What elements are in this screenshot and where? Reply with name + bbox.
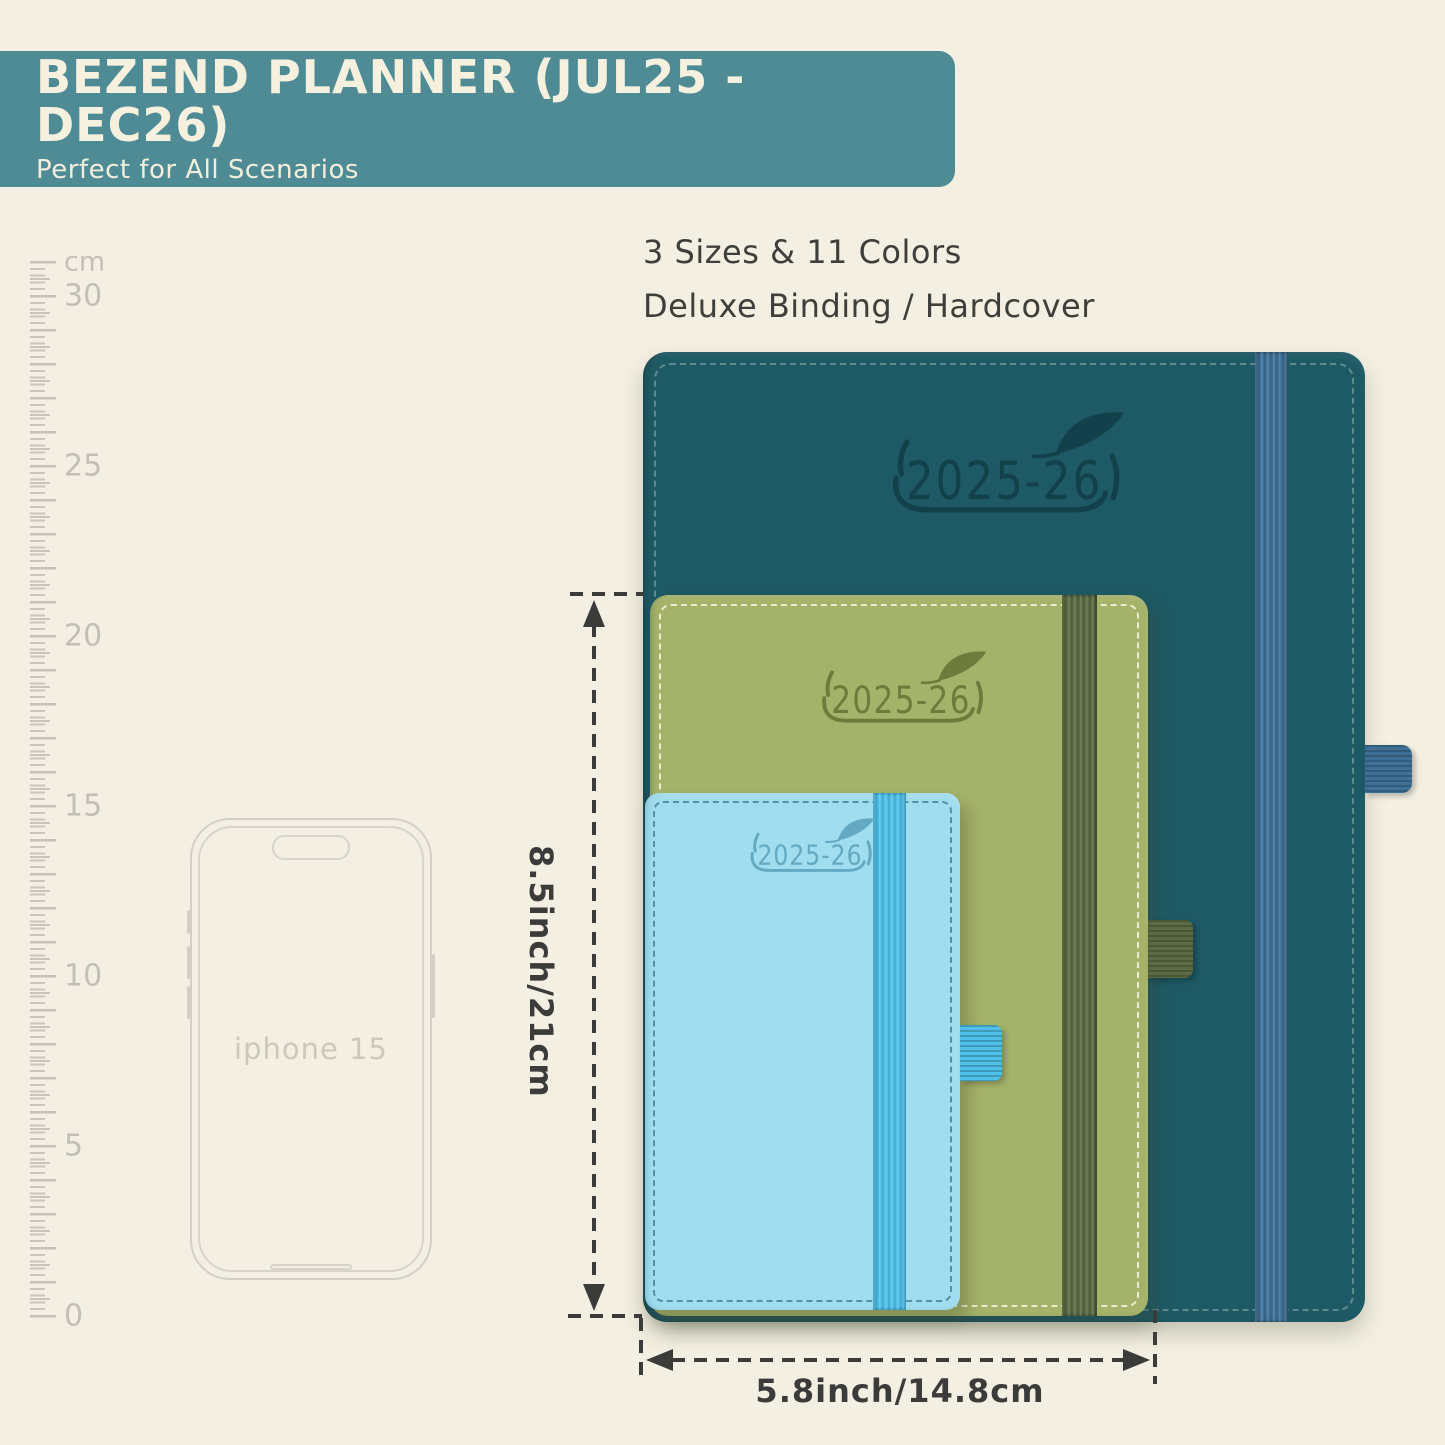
iphone-mute-switch	[187, 910, 190, 934]
iphone-volume-up-button	[187, 946, 190, 979]
height-dimension-label: 8.5inch/21cm	[522, 845, 560, 1098]
elastic-band	[1255, 352, 1288, 1322]
cover-logo: 2025-26	[873, 406, 1135, 521]
year-label: 2025-26	[831, 678, 971, 722]
pen-loop	[1365, 745, 1412, 793]
arrow-down-icon	[583, 1284, 605, 1311]
product-infographic: BEZEND PLANNER (JUL25 - DEC26) Perfect f…	[0, 0, 1445, 1445]
iphone-bottom-speaker	[270, 1264, 352, 1270]
ruler-ticks-cm	[30, 261, 56, 1319]
feather-icon	[1056, 412, 1124, 453]
pen-loop	[960, 1025, 1002, 1081]
dimension-vertical-line	[592, 624, 596, 1286]
cover-logo: 2025-26	[740, 815, 880, 876]
ruler-label-25: 25	[64, 449, 102, 484]
feather-icon	[938, 651, 986, 680]
page-subtitle: Perfect for All Scenarios	[36, 155, 955, 185]
logo-right-paren	[868, 842, 870, 864]
page-title: BEZEND PLANNER (JUL25 - DEC26)	[36, 53, 955, 150]
ruler-unit-label: cm	[64, 247, 105, 278]
logo-right-paren	[978, 683, 981, 712]
cover-logo: 2025-26	[808, 647, 994, 728]
dimension-top-cap	[570, 592, 644, 596]
pen-loop	[1148, 920, 1193, 978]
ruler-label-30: 30	[64, 279, 102, 314]
year-label: 2025-26	[906, 451, 1103, 512]
ruler-label-20: 20	[64, 619, 102, 654]
iphone-outline: iphone 15	[190, 818, 432, 1280]
title-banner: BEZEND PLANNER (JUL25 - DEC26) Perfect f…	[0, 51, 955, 187]
arrow-right-icon	[1123, 1349, 1150, 1371]
iphone-volume-down-button	[187, 986, 190, 1019]
arrow-up-icon	[583, 600, 605, 627]
ruler-label-5: 5	[64, 1129, 83, 1164]
feather-icon	[838, 818, 874, 840]
ruler-label-10: 10	[64, 959, 102, 994]
ruler-label-15: 15	[64, 789, 102, 824]
ruler-ticks	[30, 261, 56, 1319]
dimension-right-guide	[1153, 1310, 1157, 1384]
feature-line-binding: Deluxe Binding / Hardcover	[643, 290, 1095, 322]
ruler-label-0: 0	[64, 1299, 83, 1334]
planner-small-blue: 2025-26	[645, 793, 960, 1310]
iphone-dynamic-island	[272, 835, 350, 860]
dimension-left-guide	[639, 1318, 643, 1384]
iphone-power-button	[432, 954, 435, 1018]
dimension-bottom-cap	[568, 1314, 642, 1318]
width-dimension-label: 5.8inch/14.8cm	[660, 1372, 1140, 1410]
arrow-left-icon	[646, 1349, 673, 1371]
dimension-horizontal-line	[672, 1358, 1128, 1362]
iphone-label: iphone 15	[192, 1032, 430, 1066]
feature-headline: 3 Sizes & 11 Colors Deluxe Binding / Har…	[643, 236, 1095, 344]
year-label: 2025-26	[758, 839, 863, 872]
logo-right-paren	[1112, 456, 1117, 497]
feature-line-sizes-colors: 3 Sizes & 11 Colors	[643, 236, 1095, 268]
elastic-band	[1062, 595, 1097, 1316]
